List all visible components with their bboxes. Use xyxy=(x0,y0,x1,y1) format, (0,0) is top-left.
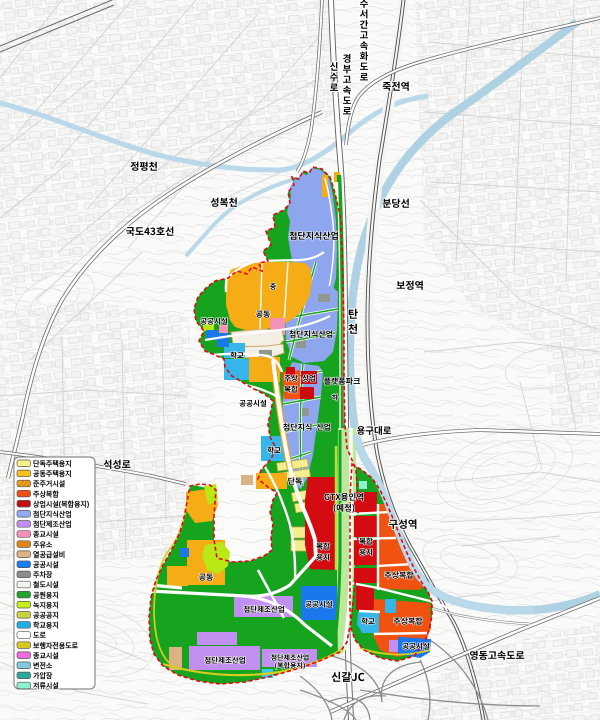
svg-text:열공급설비: 열공급설비 xyxy=(33,550,65,559)
svg-text:공공시설: 공공시설 xyxy=(33,560,59,569)
svg-text:주유소: 주유소 xyxy=(33,540,53,549)
svg-text:준주거시설: 준주거시설 xyxy=(33,479,65,488)
svg-text:주차장: 주차장 xyxy=(33,570,53,579)
svg-text:학교용지: 학교용지 xyxy=(33,621,59,630)
svg-text:단독주택용지: 단독주택용지 xyxy=(33,459,72,468)
svg-text:공공공지: 공공공지 xyxy=(33,611,59,620)
svg-text:저류시설: 저류시설 xyxy=(33,681,59,690)
svg-text:종교시설: 종교시설 xyxy=(33,651,59,660)
svg-text:주상복합: 주상복합 xyxy=(33,489,59,498)
svg-text:첨단지식산업: 첨단지식산업 xyxy=(33,510,72,519)
svg-text:변전소: 변전소 xyxy=(33,661,53,670)
svg-text:공원용지: 공원용지 xyxy=(33,590,59,599)
svg-text:종교시설: 종교시설 xyxy=(33,530,59,539)
svg-text:녹지용지: 녹지용지 xyxy=(33,600,59,609)
svg-text:철도시설: 철도시설 xyxy=(33,580,59,589)
svg-text:보행자전용도로: 보행자전용도로 xyxy=(33,641,79,650)
svg-text:도로: 도로 xyxy=(33,632,46,640)
svg-text:상업시설(복합용지): 상업시설(복합용지) xyxy=(33,499,89,508)
svg-text:가압장: 가압장 xyxy=(33,671,53,680)
svg-text:첨단제조산업: 첨단제조산업 xyxy=(33,520,72,529)
svg-text:공동주택용지: 공동주택용지 xyxy=(33,469,72,478)
